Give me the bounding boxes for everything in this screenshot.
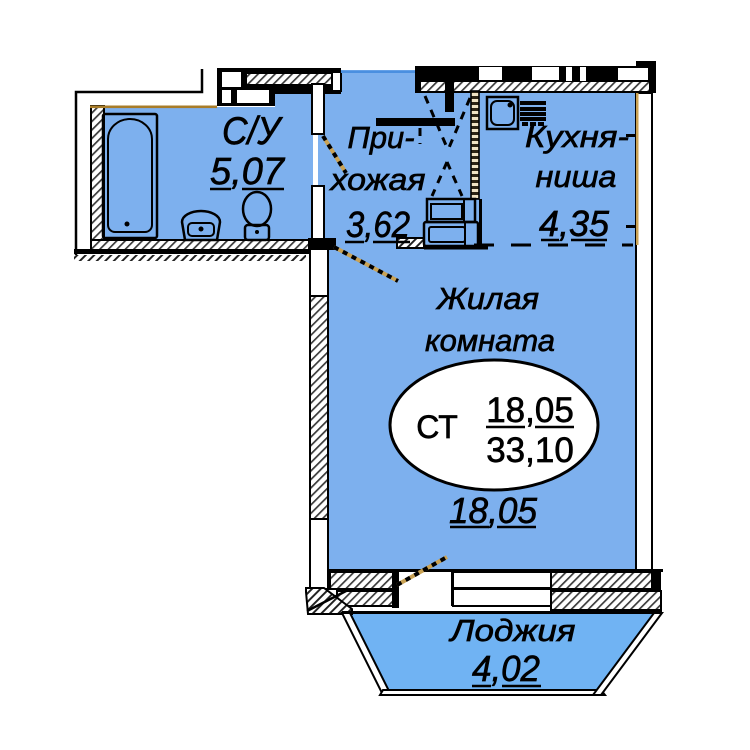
svg-text:При-: При- [348,120,415,155]
svg-text:3,62: 3,62 [346,204,410,245]
svg-text:33,10: 33,10 [486,431,574,470]
svg-text:С/У: С/У [222,110,284,153]
svg-text:18,05: 18,05 [449,490,538,531]
svg-text:СТ: СТ [416,409,458,445]
svg-text:4,35: 4,35 [539,203,610,244]
svg-text:хожая: хожая [328,162,425,197]
svg-text:Кухня-: Кухня- [525,119,629,154]
svg-text:комната: комната [425,323,555,358]
svg-text:5,07: 5,07 [210,151,286,193]
svg-text:Жилая: Жилая [435,281,539,316]
svg-text:Лоджия: Лоджия [448,613,575,648]
svg-text:ниша: ниша [536,159,617,194]
svg-text:4,02: 4,02 [472,648,540,689]
svg-text:18,05: 18,05 [486,391,574,430]
